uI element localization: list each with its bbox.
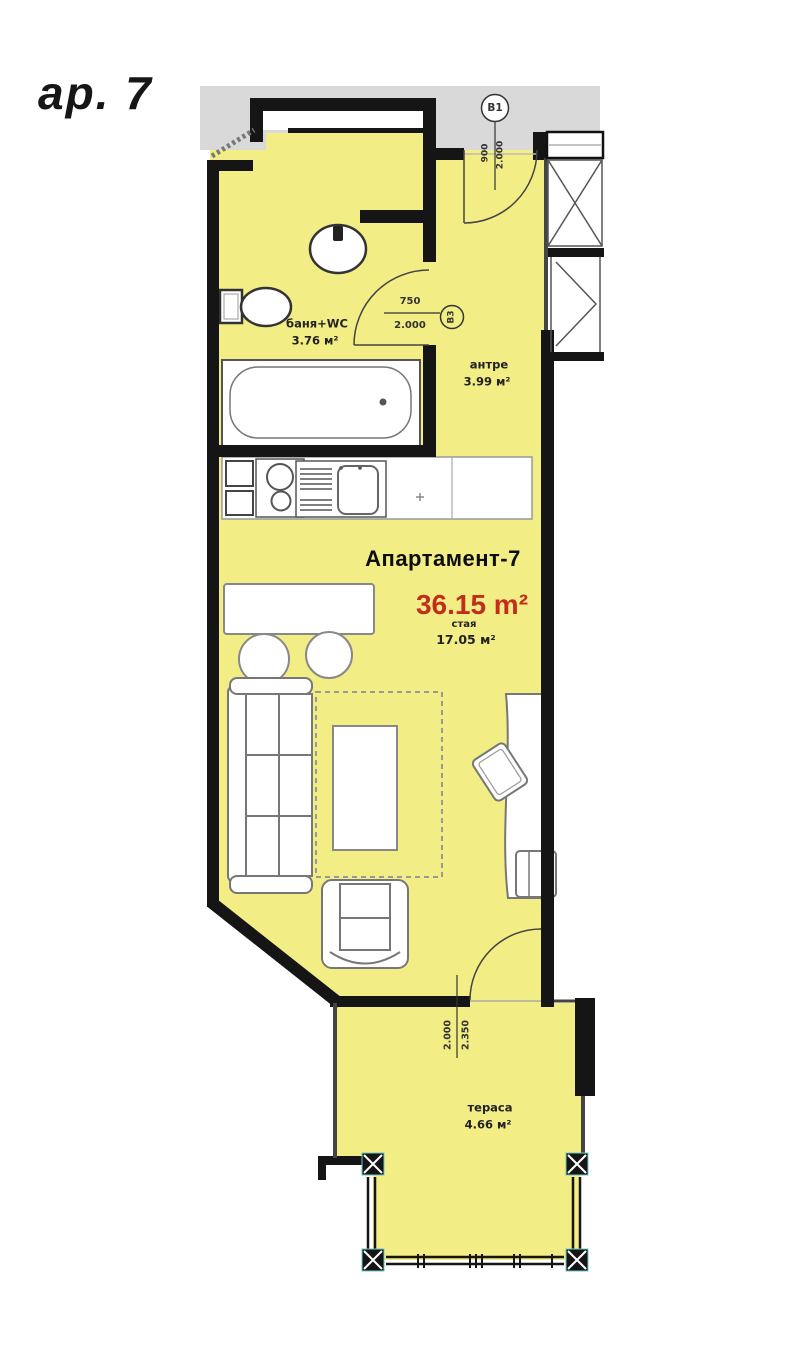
room-area-bathroom: 3.76 м² <box>292 335 339 347</box>
armchair <box>322 880 408 968</box>
stool <box>306 632 352 678</box>
marker-b1: B1 <box>487 103 502 114</box>
toilet <box>220 288 291 326</box>
coffee-table <box>333 726 397 850</box>
room-name-living: стая <box>452 620 477 630</box>
bathroom-top-wall-gap <box>263 111 436 130</box>
plan-title-label: ар. 7 <box>38 66 153 120</box>
room-name-terrace: тераса <box>467 1102 512 1114</box>
kitchen-sink <box>296 461 386 517</box>
bathtub <box>222 360 420 446</box>
dimension-terrace-door-height: 2.350 <box>461 1020 471 1050</box>
dimension-terrace-door-width: 2.000 <box>443 1020 453 1050</box>
room-area-terrace: 4.66 м² <box>465 1119 512 1131</box>
marker-b3: B3 <box>448 310 457 323</box>
kitchen-counter <box>222 457 532 519</box>
stool <box>239 634 289 684</box>
bathroom-sink <box>310 225 366 273</box>
room-area-hall: 3.99 м² <box>464 376 511 388</box>
dimension-bath-door-height: 2.000 <box>394 321 426 331</box>
elevator-shaft <box>548 248 604 361</box>
dimension-entrance-height: 2.000 <box>497 141 506 169</box>
room-name-hall: антре <box>470 359 508 371</box>
stair-shaft <box>548 160 602 246</box>
floor-plan-drawing <box>0 0 800 1358</box>
dining-table <box>224 584 374 634</box>
corridor-window <box>547 132 603 158</box>
apartment-title: Апартамент-7 <box>365 548 521 570</box>
sofa <box>228 678 312 893</box>
floor-plan-page: ар. 7 Апартамент-7 36.15 m² стая 17.05 м… <box>0 0 800 1358</box>
room-name-bathroom: баня+WC <box>286 318 348 330</box>
room-area-living: 17.05 м² <box>436 634 496 647</box>
dimension-entrance-width: 900 <box>482 144 491 163</box>
total-area-value: 36.15 m² <box>416 591 528 619</box>
dimension-bath-door-width: 750 <box>400 297 421 307</box>
